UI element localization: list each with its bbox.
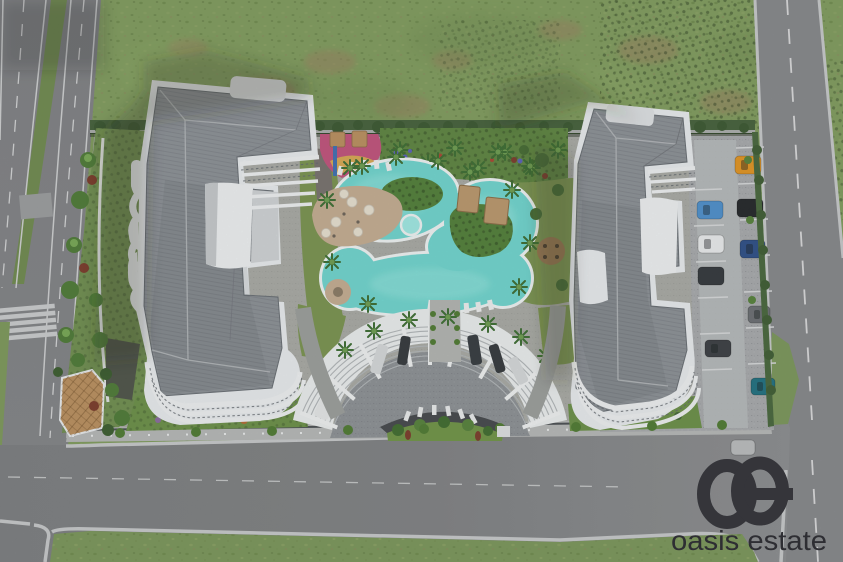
svg-text:oasis estate: oasis estate bbox=[671, 525, 827, 556]
